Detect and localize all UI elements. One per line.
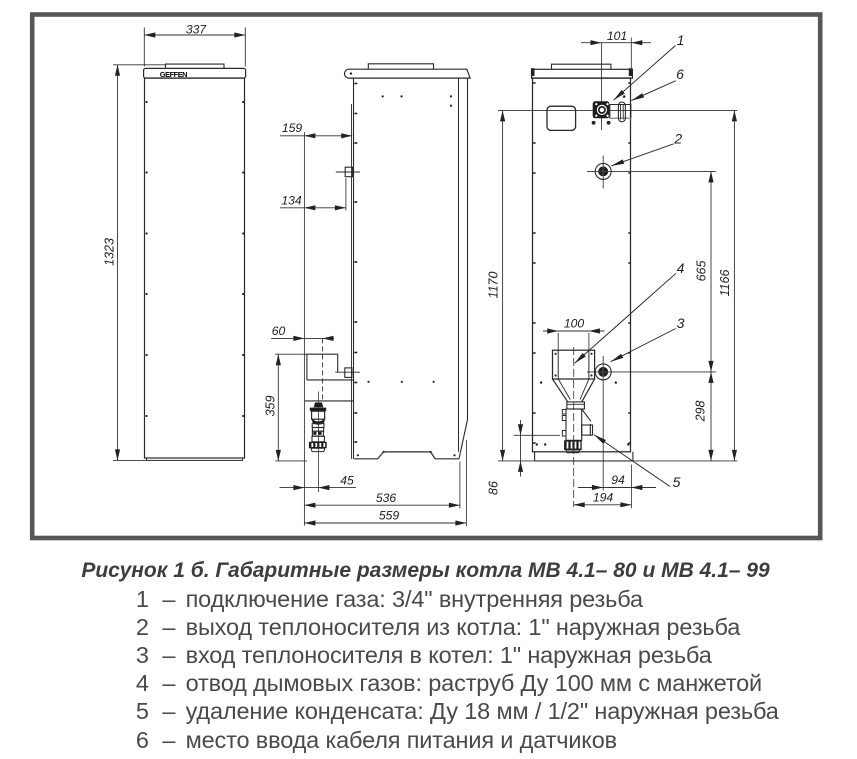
svg-text:4: 4 [677, 260, 685, 276]
svg-text:1166: 1166 [718, 270, 732, 297]
svg-text:100: 100 [564, 317, 585, 331]
svg-text:86: 86 [487, 481, 501, 495]
svg-text:6: 6 [676, 66, 684, 82]
svg-text:194: 194 [593, 491, 614, 505]
svg-text:559: 559 [379, 509, 400, 523]
svg-text:536: 536 [376, 491, 397, 505]
svg-text:359: 359 [264, 396, 278, 417]
svg-text:665: 665 [695, 261, 709, 282]
svg-text:5: 5 [673, 474, 681, 490]
svg-text:3: 3 [677, 315, 685, 331]
svg-text:94: 94 [611, 473, 625, 487]
svg-text:337: 337 [186, 23, 208, 37]
svg-text:134: 134 [281, 193, 302, 207]
svg-text:2: 2 [673, 131, 682, 147]
svg-text:298: 298 [694, 401, 708, 423]
svg-text:159: 159 [282, 121, 303, 135]
svg-text:1170: 1170 [486, 272, 500, 299]
svg-text:1323: 1323 [103, 238, 117, 266]
svg-text:60: 60 [272, 324, 286, 338]
svg-text:45: 45 [340, 473, 354, 487]
svg-text:101: 101 [607, 29, 627, 43]
svg-text:1: 1 [677, 32, 685, 48]
